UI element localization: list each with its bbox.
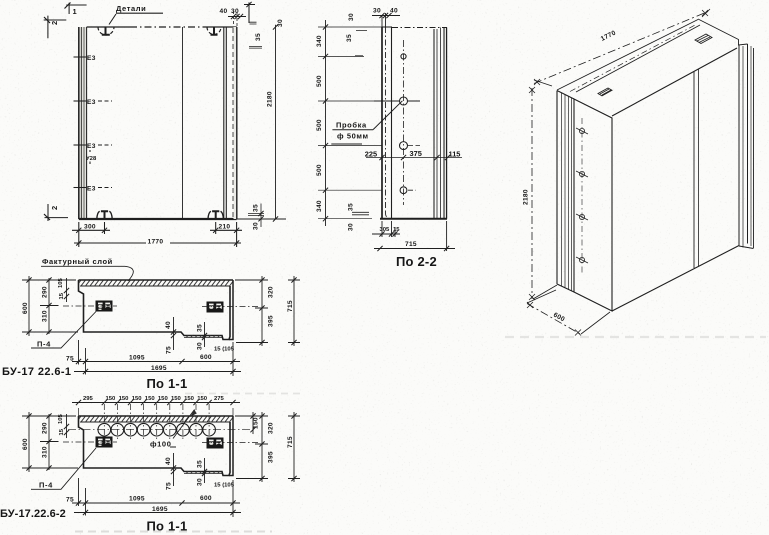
svg-text:Фактурный слой: Фактурный слой — [42, 257, 113, 266]
svg-text:75: 75 — [66, 356, 74, 363]
svg-text:150: 150 — [158, 396, 169, 402]
svg-text:295: 295 — [83, 396, 94, 402]
svg-text:По 1-1: По 1-1 — [147, 376, 188, 391]
svg-text:150: 150 — [119, 396, 130, 402]
svg-text:2: 2 — [50, 205, 59, 210]
svg-text:2180: 2180 — [523, 189, 530, 205]
svg-text:150: 150 — [253, 417, 260, 429]
svg-text:35: 35 — [255, 33, 262, 41]
svg-text:150: 150 — [197, 396, 208, 402]
svg-text:30: 30 — [231, 8, 239, 15]
svg-text:300: 300 — [84, 224, 96, 231]
svg-text:1695: 1695 — [151, 365, 167, 372]
svg-text:У28: У28 — [86, 156, 97, 162]
svg-text:150: 150 — [132, 396, 143, 402]
svg-text:340: 340 — [316, 200, 323, 212]
svg-text:30: 30 — [373, 8, 381, 15]
svg-text:500: 500 — [316, 75, 323, 87]
svg-text:275: 275 — [214, 396, 225, 402]
svg-text:1770: 1770 — [148, 239, 164, 246]
svg-text:340: 340 — [316, 35, 323, 47]
svg-text:500: 500 — [316, 164, 323, 176]
svg-text:1095: 1095 — [129, 355, 145, 362]
svg-text:210: 210 — [219, 224, 231, 231]
svg-text:Пробка: Пробка — [336, 121, 367, 130]
svg-text:35: 35 — [346, 34, 353, 42]
svg-text:1695: 1695 — [152, 506, 168, 513]
svg-text:35: 35 — [348, 203, 355, 211]
svg-text:Е3: Е3 — [87, 99, 96, 106]
svg-text:1095: 1095 — [129, 496, 145, 503]
svg-text:30: 30 — [348, 13, 355, 21]
svg-text:1: 1 — [73, 7, 78, 16]
svg-text:600: 600 — [200, 495, 212, 502]
svg-text:225: 225 — [365, 150, 377, 159]
svg-text:150: 150 — [184, 396, 195, 402]
svg-text:По 2-2: По 2-2 — [396, 254, 437, 269]
svg-text:15: 15 — [393, 227, 400, 233]
svg-text:150: 150 — [106, 396, 117, 402]
svg-text:30: 30 — [348, 223, 355, 231]
svg-text:35: 35 — [253, 204, 260, 212]
svg-text:375: 375 — [410, 149, 422, 158]
svg-text:Е3: Е3 — [87, 143, 96, 150]
svg-text:П-4: П-4 — [39, 481, 53, 490]
svg-text:30: 30 — [253, 222, 260, 230]
svg-text:75: 75 — [66, 497, 74, 504]
svg-text:БУ-17.22.6-2: БУ-17.22.6-2 — [0, 508, 66, 520]
svg-text:Детали: Детали — [116, 4, 146, 13]
svg-text:ф100: ф100 — [150, 440, 171, 449]
svg-text:150: 150 — [145, 396, 156, 402]
svg-text:40: 40 — [220, 8, 228, 15]
svg-text:305: 305 — [380, 227, 391, 233]
svg-text:2180: 2180 — [267, 91, 274, 107]
svg-text:Е3: Е3 — [87, 55, 96, 62]
svg-text:По 1-1: По 1-1 — [147, 519, 188, 534]
svg-text:715: 715 — [405, 241, 417, 248]
svg-text:2: 2 — [50, 20, 59, 25]
svg-text:30: 30 — [277, 19, 284, 27]
svg-text:ф 50мм: ф 50мм — [337, 132, 369, 141]
svg-text:П-4: П-4 — [37, 339, 51, 348]
svg-text:150: 150 — [171, 396, 182, 402]
svg-text:115: 115 — [449, 150, 461, 159]
svg-text:600: 600 — [200, 354, 212, 361]
svg-text:БУ-17 22.6-1: БУ-17 22.6-1 — [2, 366, 71, 378]
svg-text:500: 500 — [316, 119, 323, 131]
svg-text:Е3: Е3 — [87, 186, 96, 193]
